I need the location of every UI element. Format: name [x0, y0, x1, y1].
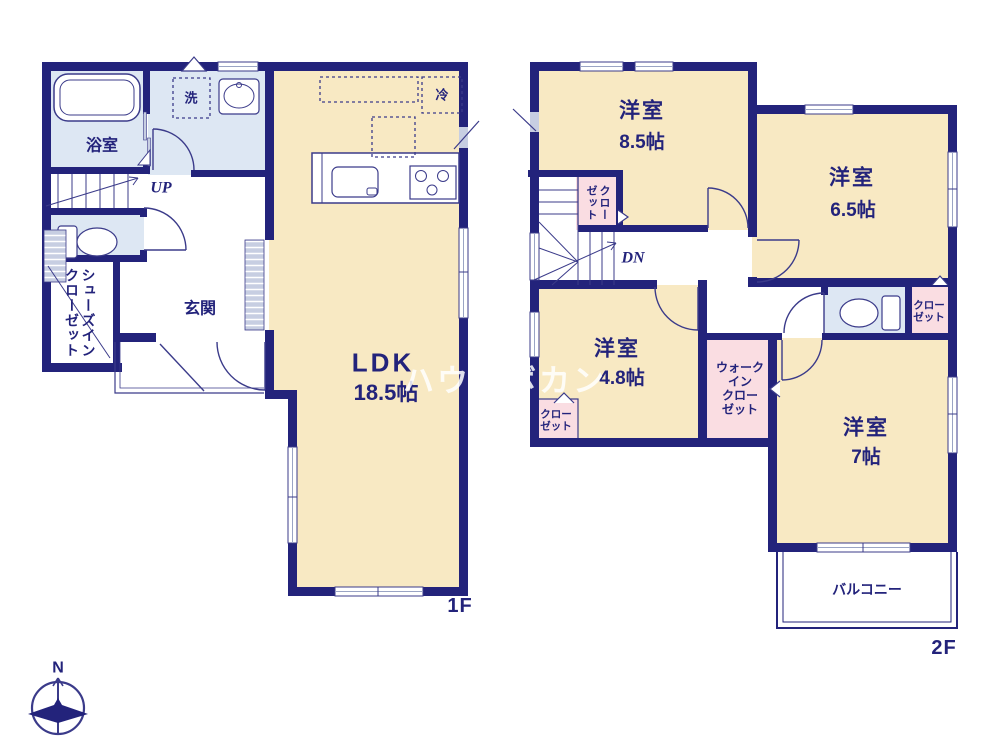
window	[580, 62, 623, 71]
compass-icon	[28, 678, 88, 734]
stairs-up-1f	[46, 174, 138, 208]
room-label-closet-hall: クロー ゼット	[584, 185, 610, 221]
watermark: ハウスボカン	[403, 356, 607, 401]
window	[288, 447, 297, 543]
room-label-walk-in-closet: ウォーク イン クロー ゼット	[716, 361, 764, 418]
label-washing-machine: 洗	[184, 90, 197, 105]
entrance-porch	[115, 342, 264, 393]
window	[948, 377, 957, 453]
window	[530, 312, 539, 357]
washbasin-icon	[219, 79, 259, 114]
window	[805, 105, 853, 114]
stairs-down-label: DN	[621, 250, 644, 269]
window	[218, 62, 258, 71]
room-label-bathroom: 浴室	[86, 138, 118, 157]
window	[459, 228, 468, 318]
window	[817, 543, 910, 552]
room-label-closet-65: クロー ゼット	[913, 300, 945, 325]
toilet-icon	[840, 296, 900, 330]
stove-icon	[410, 166, 456, 199]
room-label-bedroom-65: 洋室	[829, 167, 875, 192]
room-size-bedroom-85: 8.5帖	[619, 132, 664, 154]
sink-icon	[332, 167, 378, 197]
bathtub-icon	[54, 74, 140, 121]
toilet-icon	[58, 226, 117, 258]
room-label-entrance: 玄関	[184, 301, 216, 320]
sliding-door-icon	[245, 240, 264, 330]
window	[948, 152, 957, 227]
window	[335, 587, 423, 596]
floorplan: 浴室 洗 冷 UP 玄関 シューズイン クローゼット LDK 18.5帖 1F …	[0, 0, 1000, 750]
label-refrigerator: 冷	[435, 87, 448, 102]
window	[530, 233, 539, 280]
room-size-bedroom-65: 6.5帖	[830, 200, 875, 222]
door-arc	[217, 342, 265, 390]
room-label-balcony: バルコニー	[832, 582, 902, 599]
room-size-bedroom-7: 7帖	[851, 447, 881, 469]
room-label-closet-48: クロー ゼット	[540, 409, 572, 434]
room-label-shoes-closet: シューズイン クローゼット	[63, 268, 96, 358]
window	[635, 62, 673, 71]
floor2-label: 2F	[931, 637, 956, 661]
room-label-bedroom-7: 洋室	[843, 417, 889, 442]
floor1-label: 1F	[447, 595, 472, 619]
stairs-up-label: UP	[150, 180, 171, 199]
entry-fixed-leaf	[160, 344, 204, 391]
kitchen-counter-icon	[312, 153, 459, 203]
door-arc	[144, 208, 186, 250]
room-label-bedroom-85: 洋室	[619, 100, 665, 125]
door-arc	[784, 293, 824, 333]
compass-north-label: N	[52, 660, 64, 679]
